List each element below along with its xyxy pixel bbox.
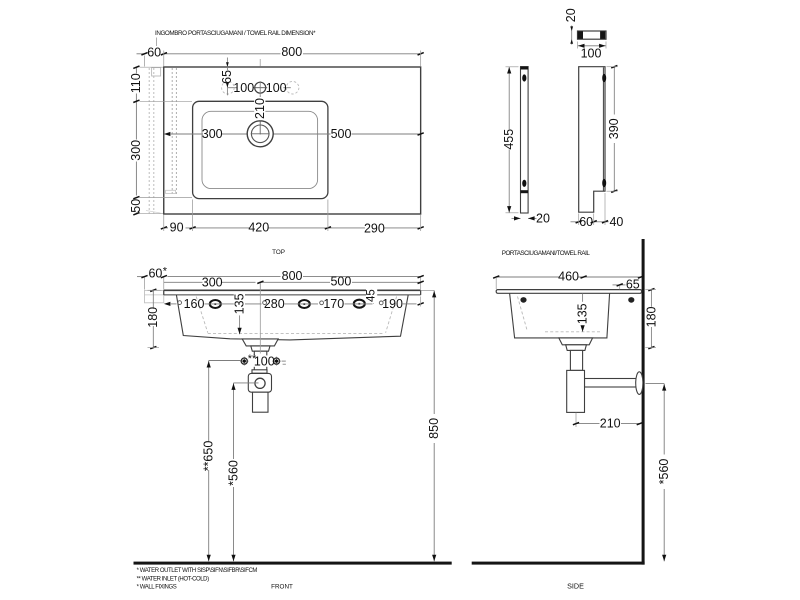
svg-text:100: 100 <box>233 81 254 95</box>
svg-text:100: 100 <box>266 81 287 95</box>
svg-text:800: 800 <box>282 269 303 283</box>
svg-text:** WATER INLET (HOT-COLD): ** WATER INLET (HOT-COLD) <box>137 576 209 582</box>
svg-text:210: 210 <box>253 98 267 119</box>
svg-text:135: 135 <box>232 293 246 314</box>
svg-text:*: * <box>163 265 168 277</box>
svg-text:20: 20 <box>536 212 550 226</box>
svg-text:INGOMBRO PORTASCIUGAMANI / TOW: INGOMBRO PORTASCIUGAMANI / TOWEL RAIL DI… <box>155 30 316 37</box>
svg-text:*560: *560 <box>657 459 671 485</box>
svg-text:60: 60 <box>147 46 161 60</box>
svg-text:290: 290 <box>364 221 385 235</box>
svg-text:500: 500 <box>330 274 351 288</box>
svg-text:SIDE: SIDE <box>567 581 584 590</box>
svg-text:65: 65 <box>626 277 640 291</box>
svg-text:300: 300 <box>202 275 223 289</box>
svg-text:135: 135 <box>575 303 589 324</box>
svg-text:850: 850 <box>427 418 441 439</box>
svg-text:65: 65 <box>220 70 234 84</box>
svg-text:TOP: TOP <box>272 249 285 256</box>
svg-text:110: 110 <box>129 73 143 93</box>
svg-text:190: 190 <box>382 297 403 311</box>
svg-text:*560: *560 <box>227 460 241 486</box>
svg-text:* WALL FIXINGS: * WALL FIXINGS <box>137 585 177 591</box>
svg-text:45: 45 <box>366 289 378 302</box>
svg-text:800: 800 <box>281 45 302 59</box>
svg-text:PORTASCIUGAMANI/TOWEL RAIL: PORTASCIUGAMANI/TOWEL RAIL <box>502 250 591 257</box>
svg-text:100: 100 <box>254 354 275 368</box>
svg-text:100: 100 <box>581 47 602 61</box>
svg-text:280: 280 <box>264 297 285 311</box>
svg-text:455: 455 <box>502 129 516 150</box>
svg-text:210: 210 <box>600 416 621 430</box>
svg-text:FRONT: FRONT <box>271 583 293 590</box>
svg-text:50: 50 <box>129 199 143 213</box>
svg-text:500: 500 <box>331 127 352 141</box>
svg-text:390: 390 <box>607 118 621 139</box>
svg-text:20: 20 <box>564 8 578 22</box>
svg-text:180: 180 <box>146 307 160 328</box>
svg-text:**650: **650 <box>202 441 216 472</box>
svg-text:170: 170 <box>323 297 344 311</box>
svg-text:60: 60 <box>579 215 593 229</box>
svg-text:60: 60 <box>148 267 162 281</box>
svg-text:40: 40 <box>609 215 623 229</box>
svg-text:300: 300 <box>129 140 143 161</box>
svg-text:* WATER OUTLET WITH SISP\SIFN: * WATER OUTLET WITH SISP\SIFN\SIFBR\SIFC… <box>137 568 258 574</box>
svg-text:180: 180 <box>645 306 659 327</box>
svg-text:90: 90 <box>170 221 184 235</box>
svg-text:300: 300 <box>202 127 223 141</box>
svg-text:160: 160 <box>184 297 205 311</box>
svg-text:460: 460 <box>558 270 579 284</box>
svg-text:420: 420 <box>248 221 269 235</box>
